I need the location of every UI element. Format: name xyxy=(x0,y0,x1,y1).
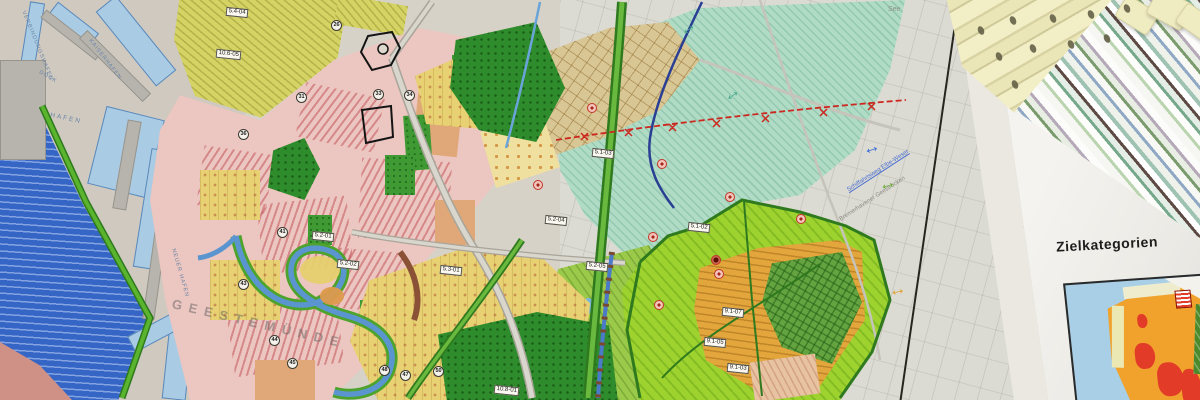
photo-land-use-map: 7.1 7.2 7.3 10.8 Hohe Lie… 8.1 In den Pl… xyxy=(0,0,1200,400)
route-marker: 31 xyxy=(296,92,307,103)
mixed-use-patch xyxy=(435,200,475,245)
red-point-symbol xyxy=(725,192,735,202)
route-marker: 48 xyxy=(379,365,390,376)
inset-pale-strip xyxy=(1112,305,1124,367)
red-point-symbol xyxy=(654,300,664,310)
route-marker: 45 xyxy=(287,358,298,369)
red-point-symbol xyxy=(533,180,543,190)
area-code-chip: 5.2-04 xyxy=(545,215,568,226)
double-arrow-icon: ↔ xyxy=(860,138,881,157)
route-marker: 33 xyxy=(373,89,384,100)
route-marker: 26 xyxy=(331,20,342,31)
inset-map xyxy=(1063,273,1200,400)
inset-striped-area xyxy=(1174,290,1192,309)
mixed-use-patch xyxy=(255,360,315,400)
route-marker: 47 xyxy=(400,370,411,381)
park-patch xyxy=(385,155,415,195)
allotment-patch xyxy=(200,170,260,220)
red-point-symbol xyxy=(657,159,667,169)
route-marker: 43 xyxy=(238,279,249,290)
double-arrow-icon: ↔ xyxy=(876,174,897,192)
route-marker: 50 xyxy=(433,366,444,377)
red-point-symbol xyxy=(648,232,658,242)
route-marker: 34 xyxy=(404,90,415,101)
red-point-symbol xyxy=(714,269,724,279)
red-point-symbol xyxy=(587,103,597,113)
grassland-area xyxy=(334,0,408,36)
lake-label: See xyxy=(888,6,900,13)
legend-title: Zielkategorien xyxy=(1056,233,1159,254)
settlement-pocket xyxy=(750,354,821,400)
route-marker: 44 xyxy=(269,335,280,346)
red-point-symbol xyxy=(796,214,806,224)
route-marker: 36 xyxy=(238,129,249,140)
red-point-symbol xyxy=(711,255,721,265)
route-marker: 41 xyxy=(277,227,288,238)
double-arrow-icon: ↔ xyxy=(887,280,908,297)
